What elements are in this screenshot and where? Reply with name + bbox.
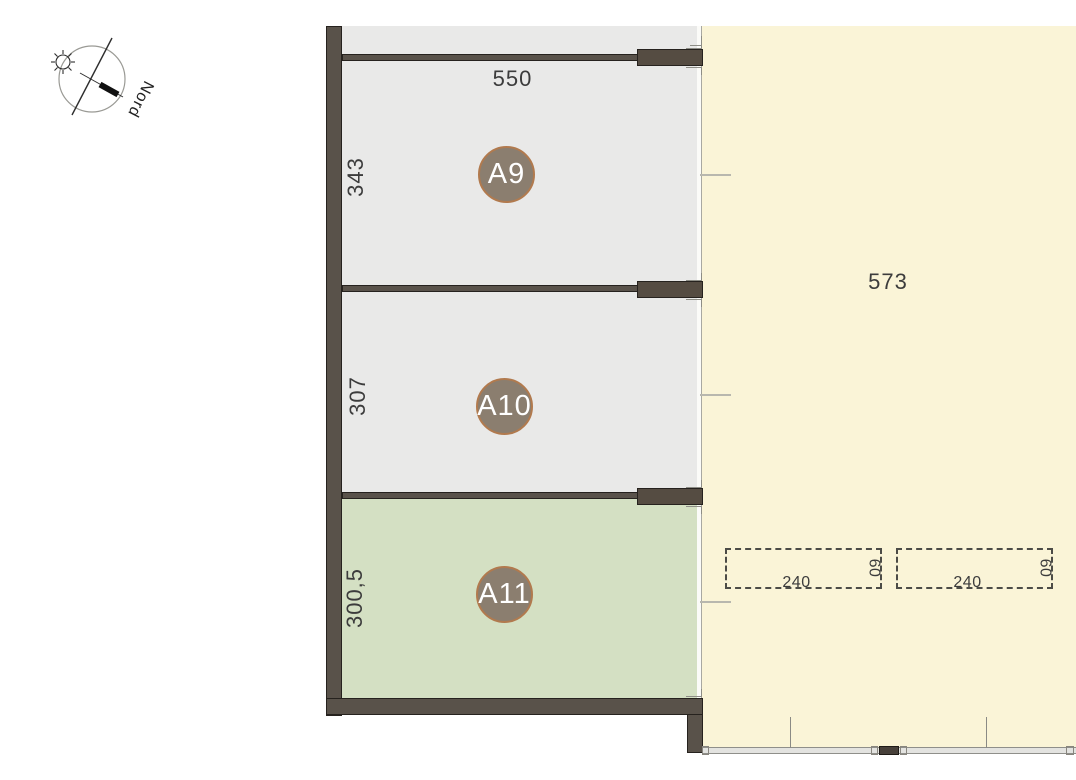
- room-a11-marker[interactable]: A11: [476, 566, 533, 623]
- north-label: Nord: [124, 78, 157, 120]
- parking-2-length-dim: 240: [898, 575, 1037, 591]
- wall-a9-top: [342, 54, 638, 61]
- jamb-bracket: [686, 506, 702, 514]
- outdoor-area[interactable]: [702, 26, 1076, 748]
- dim-a9-height: 343: [345, 137, 367, 217]
- sun-icon: [51, 50, 75, 74]
- jamb-bracket: [690, 36, 702, 46]
- room-a11-label: A11: [478, 578, 530, 611]
- floor-plan-canvas: Nord A9 A10 A11 550 343 30: [0, 0, 1076, 780]
- facade-tick: [790, 717, 791, 748]
- jamb-bracket: [686, 689, 702, 697]
- parking-1-length-dim: 240: [727, 575, 866, 591]
- jamb-bracket: [686, 299, 702, 307]
- wall-bottom: [326, 698, 703, 715]
- jamb-bracket: [686, 273, 702, 281]
- jamb-bracket: [686, 480, 702, 488]
- north-compass: Nord: [30, 28, 180, 153]
- jamb-bracket: [686, 67, 702, 75]
- parking-1-depth-dim: 60: [866, 558, 882, 577]
- facade-bracket: [871, 746, 878, 755]
- wall-a9-top-end: [637, 49, 703, 66]
- facade-stub-line: [700, 394, 731, 396]
- parking-2-depth-dim: 60: [1037, 558, 1053, 577]
- room-a10-label: A10: [477, 390, 532, 423]
- parking-space-1[interactable]: 240 60: [725, 548, 882, 589]
- facade-door-block: [879, 746, 899, 755]
- facade-bracket: [702, 746, 709, 755]
- room-a10-marker[interactable]: A10: [476, 378, 533, 435]
- wall-a9-a10: [342, 285, 638, 292]
- room-a9-label: A9: [488, 158, 525, 191]
- wall-a10-a11: [342, 492, 638, 499]
- wall-a10-a11-end: [637, 488, 703, 505]
- facade-bracket: [1066, 746, 1074, 755]
- facade-stub-line: [700, 174, 731, 176]
- room-a9-marker[interactable]: A9: [478, 146, 535, 203]
- facade-line: [697, 26, 702, 748]
- facade-stub-line: [700, 601, 731, 603]
- dim-outdoor: 573: [849, 271, 927, 293]
- north-needle: [100, 85, 118, 95]
- wall-bottom-leg: [687, 714, 703, 753]
- dim-a10-height: 307: [347, 356, 369, 436]
- wall-a9-a10-end: [637, 281, 703, 298]
- wall-left: [326, 26, 342, 716]
- facade-tick: [986, 717, 987, 748]
- parking-space-2[interactable]: 240 60: [896, 548, 1053, 589]
- dim-a11-height: 300,5: [344, 553, 366, 643]
- facade-bracket: [900, 746, 907, 755]
- dim-a9-width: 550: [470, 68, 555, 90]
